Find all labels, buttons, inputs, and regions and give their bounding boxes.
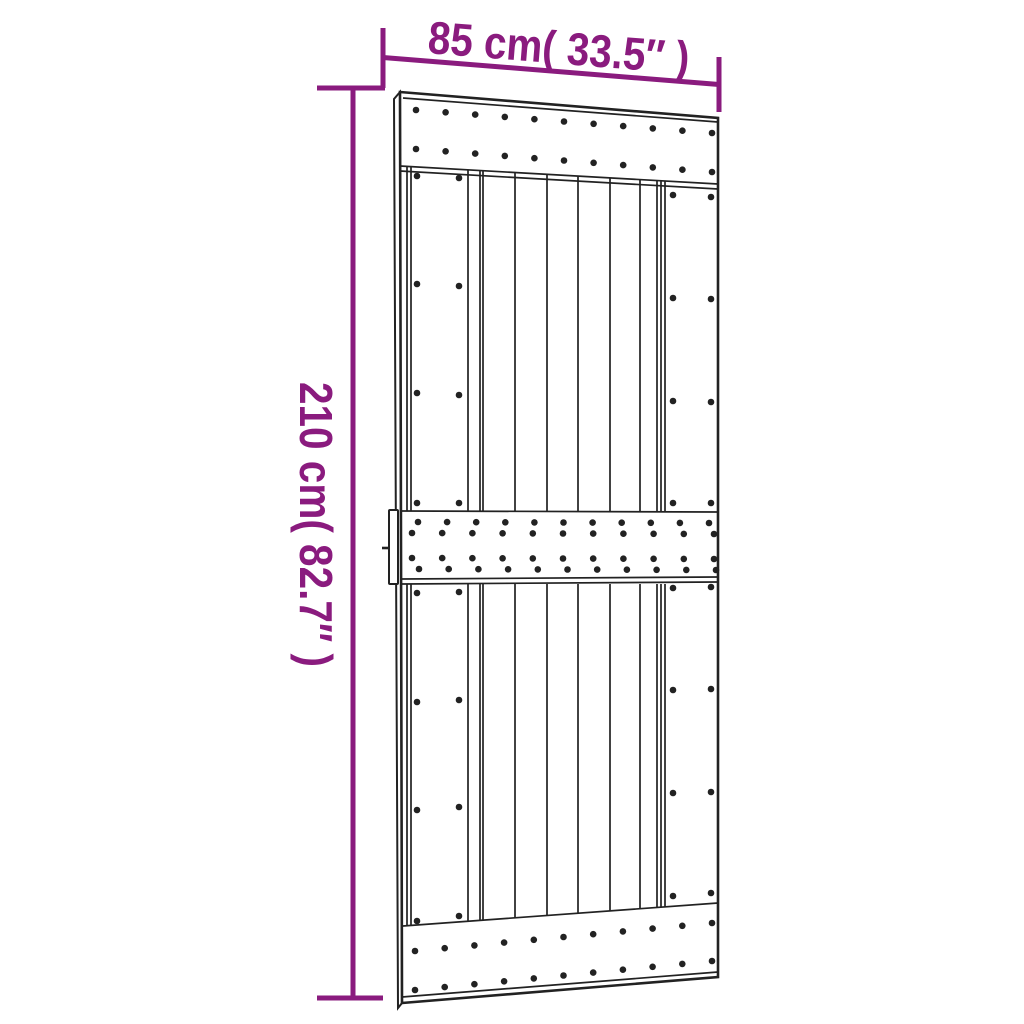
nail-dot [414,173,421,180]
handle-bar [389,510,398,584]
nail-dot [560,972,567,979]
nail-dot [501,939,508,946]
nail-dot [590,969,597,976]
nail-dot [708,584,715,591]
nail-dot [709,920,716,927]
nail-dot [456,804,463,811]
height-dimension-label: 210 cm( 82.7″ ) [290,382,342,667]
nail-dot [708,686,715,693]
nail-dot [560,934,567,941]
nail-dot [681,556,688,563]
nail-dot [414,918,421,925]
nail-dot [650,556,657,563]
nail-dot [439,530,446,537]
nail-dot [670,398,677,405]
nail-dot [472,111,479,118]
nail-dot [590,121,597,128]
door-face-outline [400,92,718,1003]
product-dimension-diagram: 85 cm( 33.5″ ) 210 cm( 82.7″ ) [0,0,1024,1024]
nail-dot [499,555,506,562]
nail-dot [531,975,538,982]
nail-dot [445,566,452,573]
nail-dot [505,566,512,573]
nail-dot [711,556,718,563]
nail-dot [456,913,463,920]
nail-dot [670,585,677,592]
nail-dot [679,166,686,173]
nail-dot [412,987,419,994]
nail-dot [708,890,715,897]
nail-dot [650,125,657,132]
nail-dot [414,500,421,507]
barn-door-drawing [382,92,719,1008]
nail-dot [670,192,677,199]
nail-dot [670,500,677,507]
nail-dot [708,399,715,406]
nail-dot [649,925,656,932]
nail-dot [594,566,601,573]
nail-dot [708,194,715,201]
nail-dot [670,893,677,900]
door-diagram-svg: 85 cm( 33.5″ ) 210 cm( 82.7″ ) [0,0,1024,1024]
nail-dot [535,566,542,573]
nail-dot [711,531,718,538]
nail-dot [414,390,421,397]
nail-dot [590,160,597,167]
nail-dot [560,555,567,562]
nail-dot [560,519,567,526]
nail-dot [471,942,478,949]
nail-dot [414,590,421,597]
nail-dot [624,566,631,573]
nail-dot [469,555,476,562]
nail-dot [456,697,463,704]
nail-dot [409,555,416,562]
nail-dot [415,519,422,526]
nail-dot [499,530,506,537]
nail-dot [648,520,655,527]
nail-dot [560,530,567,537]
nail-dot [620,530,627,537]
nail-dot [649,964,656,971]
nail-dot [708,296,715,303]
nail-dot [618,519,625,526]
nail-dot [456,392,463,399]
nail-dot [530,555,537,562]
nail-dot [469,530,476,537]
nail-dot [531,116,538,123]
nail-dot [456,589,463,596]
nail-dot [414,807,421,814]
nail-dot [473,519,480,526]
nail-dot [650,531,657,538]
nail-dot [531,937,538,944]
nail-dot [653,567,660,574]
nail-dot [413,107,420,114]
nail-dot [530,530,537,537]
nail-dot [413,146,420,153]
nail-dot [708,789,715,796]
nail-dot [650,164,657,171]
nail-dot [564,566,571,573]
nail-dot [679,127,686,134]
nail-dot [590,931,597,938]
nail-dot [444,519,451,526]
nail-dot [709,958,716,965]
nail-dot [620,555,627,562]
nail-dot [456,283,463,290]
nail-dot [502,114,509,121]
nail-dot [456,175,463,182]
nail-dot [416,566,423,573]
nail-dot [589,519,596,526]
nail-dot [681,531,688,538]
nail-dot [679,923,686,930]
nail-dot [442,148,449,155]
nail-dot [414,699,421,706]
nail-dot [620,123,627,130]
nail-dot [531,519,538,526]
nail-dot [670,687,677,694]
nail-dot [670,295,677,302]
nail-dot [679,961,686,968]
nail-dot [708,500,715,507]
nail-dot [677,520,684,527]
nail-dot [414,281,421,288]
door-handle [382,510,398,584]
nail-dot [442,109,449,116]
nail-dot [409,530,416,537]
nail-dot [590,555,597,562]
nail-dot [620,966,627,973]
nail-dot [590,530,597,537]
nail-dot [561,118,568,125]
nail-dot [412,948,419,955]
nail-dot [475,566,482,573]
nail-dot [709,130,716,137]
nail-dot [620,162,627,169]
nail-dot [441,984,448,991]
nail-dot [502,153,509,160]
nail-dot [706,520,713,527]
nail-dot [620,928,627,935]
nail-dot [441,945,448,952]
width-dimension-label: 85 cm( 33.5″ ) [426,11,691,84]
nail-dot [561,157,568,164]
nail-dot [471,981,478,988]
nail-dot [713,567,720,574]
nail-dot [439,555,446,562]
nail-dot [456,500,463,507]
nail-dot [670,790,677,797]
nail-dot [502,519,509,526]
nail-dot [501,978,508,985]
nail-dot [531,155,538,162]
nail-dot [472,150,479,157]
nail-dot [683,567,690,574]
nail-dot [709,169,716,176]
